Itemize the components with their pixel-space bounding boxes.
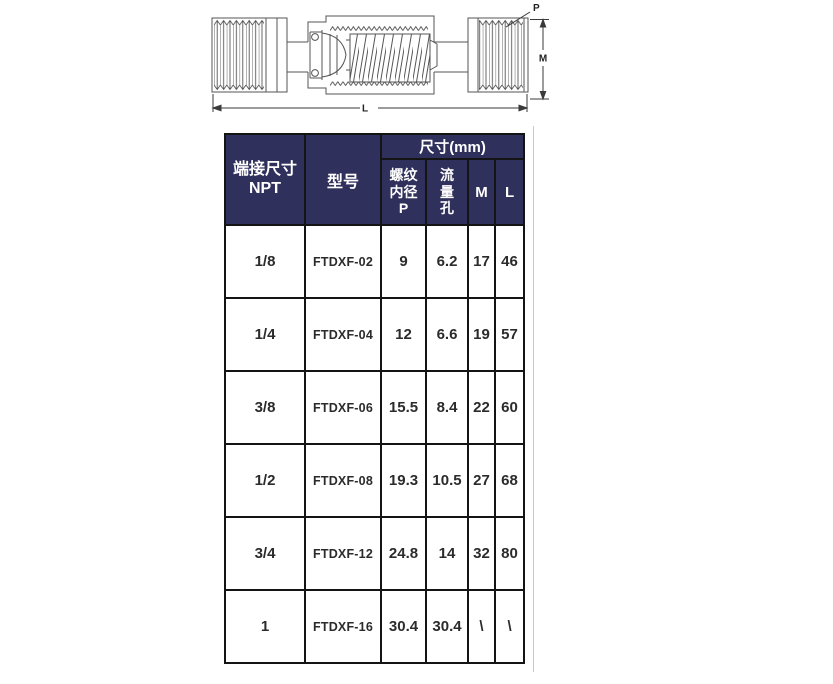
fitting-technical-drawing: L M P	[0, 0, 600, 125]
header-thread-p: 螺纹 内径 P	[381, 159, 426, 225]
fitting-body-outline	[212, 16, 528, 94]
cell-flow: 8.4	[426, 371, 468, 444]
seal-ring-bottom	[312, 70, 319, 77]
table-row: 3/8 FTDXF-06 15.5 8.4 22 60	[225, 371, 524, 444]
cell-model: FTDXF-02	[305, 225, 381, 298]
cell-l: 60	[495, 371, 524, 444]
header-flow-line3: 孔	[427, 200, 467, 217]
cell-m: 27	[468, 444, 495, 517]
spec-table: 端接尺寸 NPT 型号 尺寸(mm) 螺纹 内径 P 流 量 孔 M L	[224, 133, 525, 664]
cell-flow: 6.2	[426, 225, 468, 298]
spring-coil	[350, 34, 430, 82]
cell-flow: 14	[426, 517, 468, 590]
page-edge-line	[533, 126, 534, 672]
cell-model: FTDXF-08	[305, 444, 381, 517]
table-row: 3/4 FTDXF-12 24.8 14 32 80	[225, 517, 524, 590]
header-l: L	[495, 159, 524, 225]
left-thread-hatch	[214, 19, 264, 91]
cell-m: 19	[468, 298, 495, 371]
cell-l: 46	[495, 225, 524, 298]
table-row: 1/4 FTDXF-04 12 6.6 19 57	[225, 298, 524, 371]
cell-l: 80	[495, 517, 524, 590]
cell-model: FTDXF-16	[305, 590, 381, 663]
header-npt: 端接尺寸 NPT	[225, 134, 305, 225]
seal-ring-top	[312, 34, 319, 41]
header-size-group: 尺寸(mm)	[381, 134, 524, 159]
cell-thread-p: 9	[381, 225, 426, 298]
header-thread-line1: 螺纹	[382, 167, 425, 184]
cell-npt: 1/8	[225, 225, 305, 298]
cell-npt: 1/4	[225, 298, 305, 371]
dimension-label-m: M	[539, 54, 547, 65]
cell-m: 32	[468, 517, 495, 590]
header-m: M	[468, 159, 495, 225]
right-thread-hatch	[479, 19, 523, 91]
cell-model: FTDXF-12	[305, 517, 381, 590]
cell-thread-p: 12	[381, 298, 426, 371]
header-npt-line1: 端接尺寸	[226, 161, 304, 180]
table-row: 1/8 FTDXF-02 9 6.2 17 46	[225, 225, 524, 298]
cell-flow: 6.6	[426, 298, 468, 371]
table-row: 1/2 FTDXF-08 19.3 10.5 27 68	[225, 444, 524, 517]
cell-l: 68	[495, 444, 524, 517]
header-flow-line2: 量	[427, 184, 467, 201]
cell-flow: 10.5	[426, 444, 468, 517]
cell-model: FTDXF-06	[305, 371, 381, 444]
cell-flow: 30.4	[426, 590, 468, 663]
cell-thread-p: 19.3	[381, 444, 426, 517]
page: L M P 端接尺寸 NPT 型号 尺寸(mm) 螺纹 内径 P	[0, 0, 833, 684]
cell-npt: 3/8	[225, 371, 305, 444]
cell-m: 17	[468, 225, 495, 298]
header-model: 型号	[305, 134, 381, 225]
cell-model: FTDXF-04	[305, 298, 381, 371]
table-row: 1 FTDXF-16 30.4 30.4 \ \	[225, 590, 524, 663]
cell-npt: 1/2	[225, 444, 305, 517]
cell-thread-p: 15.5	[381, 371, 426, 444]
header-thread-line2: 内径	[382, 184, 425, 201]
inner-thread-wave-top	[330, 26, 428, 31]
cell-npt: 3/4	[225, 517, 305, 590]
cell-thread-p: 24.8	[381, 517, 426, 590]
cell-m: \	[468, 590, 495, 663]
dimension-label-p: P	[533, 3, 540, 14]
header-flow-line1: 流	[427, 167, 467, 184]
cell-thread-p: 30.4	[381, 590, 426, 663]
cell-l: \	[495, 590, 524, 663]
header-thread-line3: P	[382, 200, 425, 217]
cell-l: 57	[495, 298, 524, 371]
header-npt-line2: NPT	[226, 180, 304, 199]
cell-npt: 1	[225, 590, 305, 663]
header-flow-hole: 流 量 孔	[426, 159, 468, 225]
cell-m: 22	[468, 371, 495, 444]
dimension-label-l: L	[362, 104, 368, 115]
